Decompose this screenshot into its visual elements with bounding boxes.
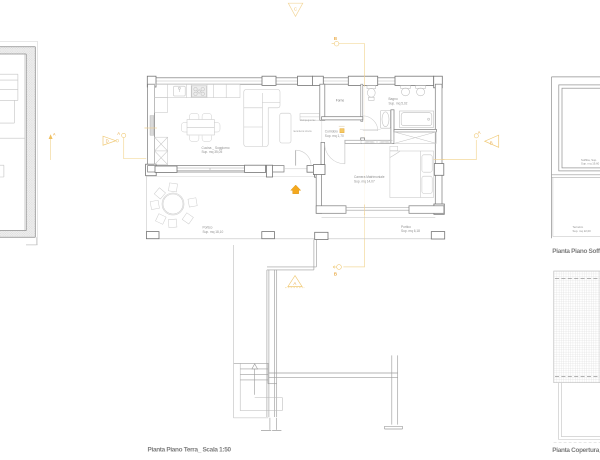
svg-text:C: C (294, 6, 297, 11)
svg-text:Pianta Piano Soffitta: Pianta Piano Soffitta (552, 248, 600, 255)
svg-text:lavanderia stireria: lavanderia stireria (293, 130, 312, 133)
svg-text:A: A (478, 130, 481, 135)
svg-text:Bagno: Bagno (389, 97, 398, 101)
svg-text:Forno: Forno (336, 98, 345, 102)
svg-text:Pianta Piano Terra_ Scala 1:50: Pianta Piano Terra_ Scala 1:50 (148, 447, 232, 454)
svg-text:A: A (117, 131, 120, 136)
svg-text:Pianta Copertura_: Pianta Copertura_ (552, 447, 600, 454)
svg-text:Camera Matrimoniale: Camera Matrimoniale (354, 175, 385, 179)
svg-text:B: B (334, 272, 338, 277)
svg-text:Sup. mq 5,02: Sup. mq 5,02 (389, 102, 408, 106)
svg-text:A: A (53, 132, 56, 136)
svg-text:B: B (334, 36, 338, 41)
svg-text:Sup. mq 1,70: Sup. mq 1,70 (325, 134, 344, 138)
svg-text:Sup. mq 22,00: Sup. mq 22,00 (573, 229, 592, 233)
svg-text:D: D (106, 139, 109, 144)
svg-text:Corridoio: Corridoio (325, 129, 338, 133)
svg-text:B: B (490, 141, 493, 146)
svg-text:Sup. mq 14,07: Sup. mq 14,07 (354, 180, 375, 184)
svg-text:A: A (293, 281, 296, 286)
svg-text:Sup. mq 6,18: Sup. mq 6,18 (401, 229, 420, 233)
svg-text:Sup. mq 19,60: Sup. mq 19,60 (581, 161, 600, 165)
svg-text:Cucina _ Soggiorno: Cucina _ Soggiorno (202, 146, 230, 150)
svg-text:disimpegno lav.: disimpegno lav. (300, 120, 316, 122)
svg-text:Sup. mq 35,05: Sup. mq 35,05 (202, 150, 223, 154)
svg-text:Sup. mq 18,10: Sup. mq 18,10 (203, 230, 224, 234)
